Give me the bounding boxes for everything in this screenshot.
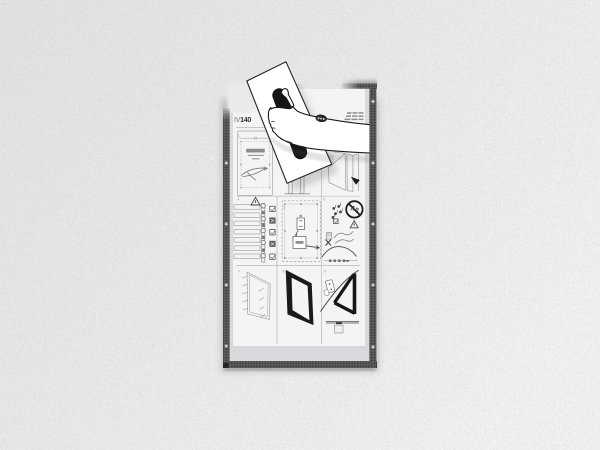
svg-text:4: 4 <box>238 198 240 202</box>
svg-text:8: 8 <box>283 270 285 274</box>
svg-text:IV140: IV140 <box>234 117 251 124</box>
svg-text:7: 7 <box>238 270 240 274</box>
svg-text:6: 6 <box>324 198 326 202</box>
svg-text:5: 5 <box>284 206 286 210</box>
svg-text:9: 9 <box>324 270 326 274</box>
svg-text:1: 1 <box>238 134 240 138</box>
